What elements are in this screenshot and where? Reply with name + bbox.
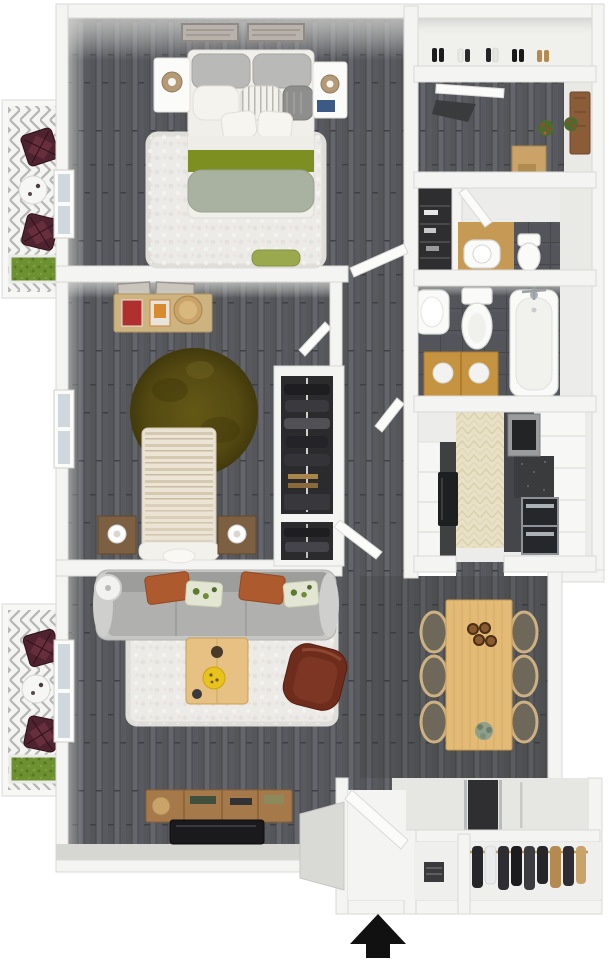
book	[317, 100, 335, 112]
kitchen-floor	[456, 412, 504, 548]
wall-art-icon	[248, 24, 304, 41]
planter-box-icon	[10, 256, 57, 282]
sage-bolster	[188, 170, 314, 212]
pillow-terracotta	[238, 571, 285, 604]
window-master	[54, 170, 74, 238]
shoe-closet	[414, 14, 596, 68]
balcony-upper	[2, 100, 62, 298]
bathtub-icon	[510, 286, 558, 396]
sofa	[93, 570, 339, 640]
nightstand-right	[218, 516, 256, 554]
balcony-lower	[2, 604, 62, 796]
exterior-wall-top	[56, 4, 604, 18]
floor-plan-image	[0, 0, 608, 960]
window-living	[54, 640, 74, 742]
yellow-bowl	[203, 667, 225, 689]
pillow-small	[221, 110, 258, 140]
toilet-icon	[462, 288, 492, 349]
entry-arrow-icon	[350, 914, 406, 958]
floor-lamp-icon	[95, 575, 121, 601]
green-blanket	[188, 150, 314, 172]
floor-plan-render	[0, 0, 608, 960]
pillow	[253, 54, 311, 88]
media-console	[146, 790, 292, 822]
kitchen	[414, 406, 596, 562]
pillow-terracotta	[144, 571, 191, 605]
storage-bench	[252, 250, 300, 266]
nightstand-left	[98, 516, 136, 554]
flower-arrangement-icon	[538, 120, 554, 136]
hanging-clothes	[284, 384, 330, 395]
planter-box-icon	[10, 756, 57, 782]
bistro-table-icon	[22, 675, 50, 703]
half-bath	[414, 186, 596, 272]
tv-icon	[170, 820, 264, 844]
flower-arrangement-icon	[564, 117, 578, 131]
wall-art-icon	[182, 24, 238, 41]
striped-duvet	[145, 431, 213, 501]
desk	[114, 294, 212, 332]
bedroom2-right-wall	[330, 282, 342, 370]
oven-icon	[522, 498, 558, 554]
window-bedroom2	[54, 390, 74, 468]
exterior-wall-right	[592, 4, 604, 582]
bistro-table-icon	[19, 176, 47, 204]
sink-icon	[433, 363, 453, 383]
coffee-table	[186, 638, 248, 704]
storage-niche-item	[424, 862, 444, 882]
nightstand-left	[154, 58, 190, 112]
dining-table	[446, 600, 512, 750]
granite-counter	[514, 456, 554, 498]
decor-ball	[192, 689, 202, 699]
decor-vase	[152, 797, 170, 815]
plant-icon	[475, 722, 493, 740]
bedroom2-bed	[139, 428, 219, 563]
hanging-clothes	[472, 846, 586, 890]
full-bath	[414, 284, 596, 398]
door-runner	[468, 780, 498, 830]
decor-ball	[211, 646, 223, 658]
book	[122, 300, 142, 326]
dining-right-wall	[548, 570, 562, 790]
bedroom2-closet	[274, 366, 344, 566]
hall-right-wall	[404, 6, 418, 578]
toilet-icon	[518, 234, 540, 271]
nightstand-right	[313, 62, 347, 118]
exterior-landing	[300, 802, 344, 890]
double-vanity	[424, 352, 498, 396]
pillow-print	[283, 581, 319, 608]
master-bed	[188, 50, 314, 218]
pillow-small	[257, 111, 293, 140]
sink-icon	[469, 363, 489, 383]
dining-area	[421, 600, 537, 750]
pillow	[192, 54, 250, 88]
microwave-icon	[508, 414, 540, 456]
sink-icon	[473, 245, 491, 263]
